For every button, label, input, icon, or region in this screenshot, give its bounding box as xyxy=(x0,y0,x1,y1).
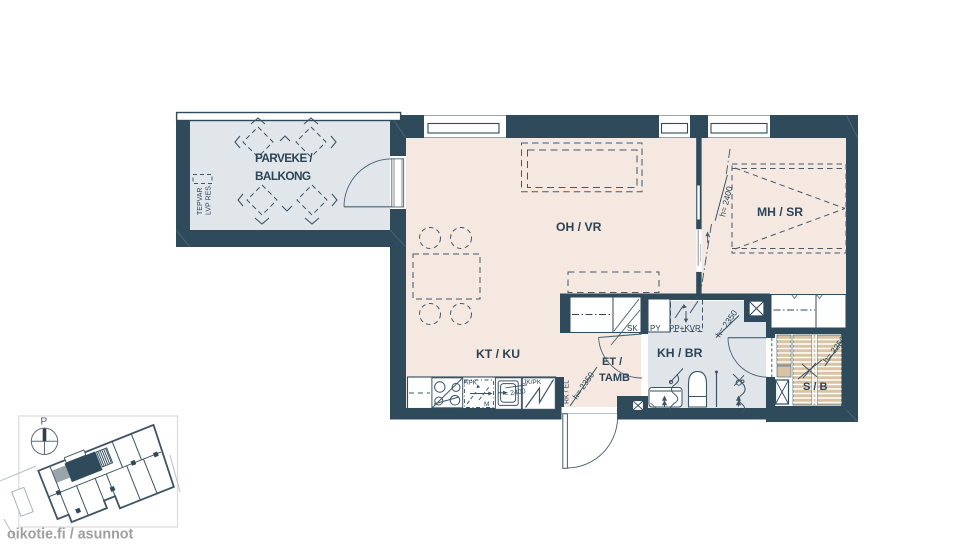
svg-text:ET /: ET / xyxy=(602,356,622,368)
svg-text:KT / KU: KT / KU xyxy=(476,347,520,361)
svg-text:TEPVAR: TEPVAR xyxy=(197,188,204,216)
svg-text:M: M xyxy=(484,401,489,408)
svg-text:S / B: S / B xyxy=(803,381,828,393)
svg-text:oikotie.fi / asunnot: oikotie.fi / asunnot xyxy=(7,527,134,543)
svg-text:P: P xyxy=(41,417,48,428)
svg-text:APK: APK xyxy=(464,380,478,387)
svg-text:KH / BR: KH / BR xyxy=(657,346,703,360)
svg-text:RK / EL: RK / EL xyxy=(564,380,571,404)
svg-text:LVP RES.: LVP RES. xyxy=(206,184,213,215)
svg-text:MH / SR: MH / SR xyxy=(757,205,803,219)
svg-text:SK: SK xyxy=(627,324,638,333)
svg-text:PY: PY xyxy=(650,324,661,333)
svg-text:PP+KVR: PP+KVR xyxy=(669,324,701,333)
svg-text:PARVEKE /: PARVEKE / xyxy=(255,151,313,165)
svg-text:TAMB: TAMB xyxy=(599,372,630,384)
svg-text:OH / VR: OH / VR xyxy=(556,220,602,234)
svg-text:BALKONG: BALKONG xyxy=(255,169,311,183)
